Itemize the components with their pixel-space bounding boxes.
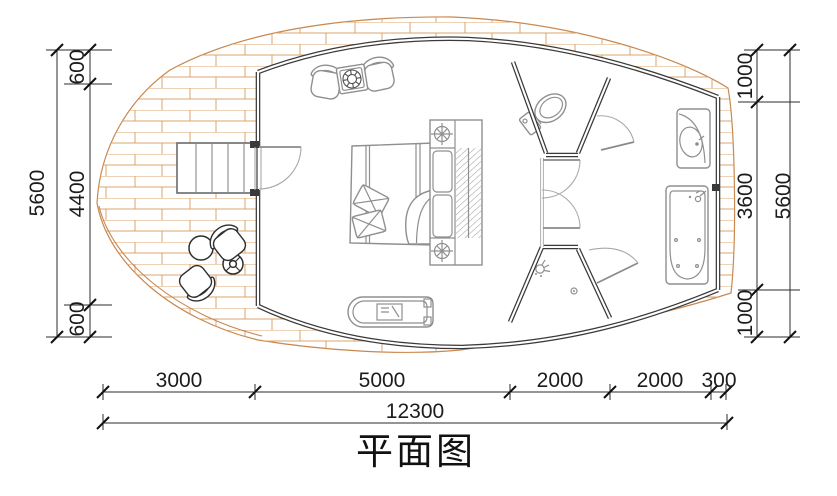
sink-vanity	[677, 109, 710, 168]
dim-bottom-300: 300	[701, 369, 736, 392]
dim-left-600-top: 600	[66, 49, 89, 84]
drawing-title: 平面图	[356, 431, 476, 472]
bed	[350, 143, 434, 245]
floor-plan-page: 600 4400 600 5600 1000 3600 1000 5600 30…	[0, 0, 837, 496]
bathtub	[666, 186, 708, 284]
dim-bottom-total: 12300	[386, 400, 444, 423]
dim-bottom-2000-a: 2000	[537, 369, 584, 392]
dim-bottom-3000: 3000	[156, 369, 203, 392]
dim-left-4400: 4400	[66, 171, 89, 218]
entry-stairs	[177, 143, 257, 193]
wardrobe-unit	[430, 120, 482, 265]
door-jamb	[250, 141, 259, 148]
dim-bottom-5000: 5000	[359, 369, 406, 392]
door-jamb	[250, 189, 259, 196]
dimension-right: 1000 3600 1000 5600	[734, 44, 800, 343]
dim-left-600-bottom: 600	[66, 301, 89, 336]
outdoor-round-table	[189, 236, 213, 260]
floor-plan-drawing: 600 4400 600 5600 1000 3600 1000 5600 30…	[0, 0, 837, 496]
dim-right-3600: 3600	[734, 173, 757, 220]
dim-right-1000-top: 1000	[734, 53, 757, 100]
dim-left-total: 5600	[26, 170, 49, 217]
window-mullion	[712, 184, 720, 191]
dimension-bottom: 3000 5000 2000 2000 300 12300	[97, 369, 737, 430]
dim-right-1000-bottom: 1000	[734, 290, 757, 337]
side-table-stove	[336, 64, 368, 94]
tv-cabinet	[348, 297, 433, 327]
dim-bottom-2000-b: 2000	[637, 369, 684, 392]
dim-right-total: 5600	[772, 173, 795, 220]
